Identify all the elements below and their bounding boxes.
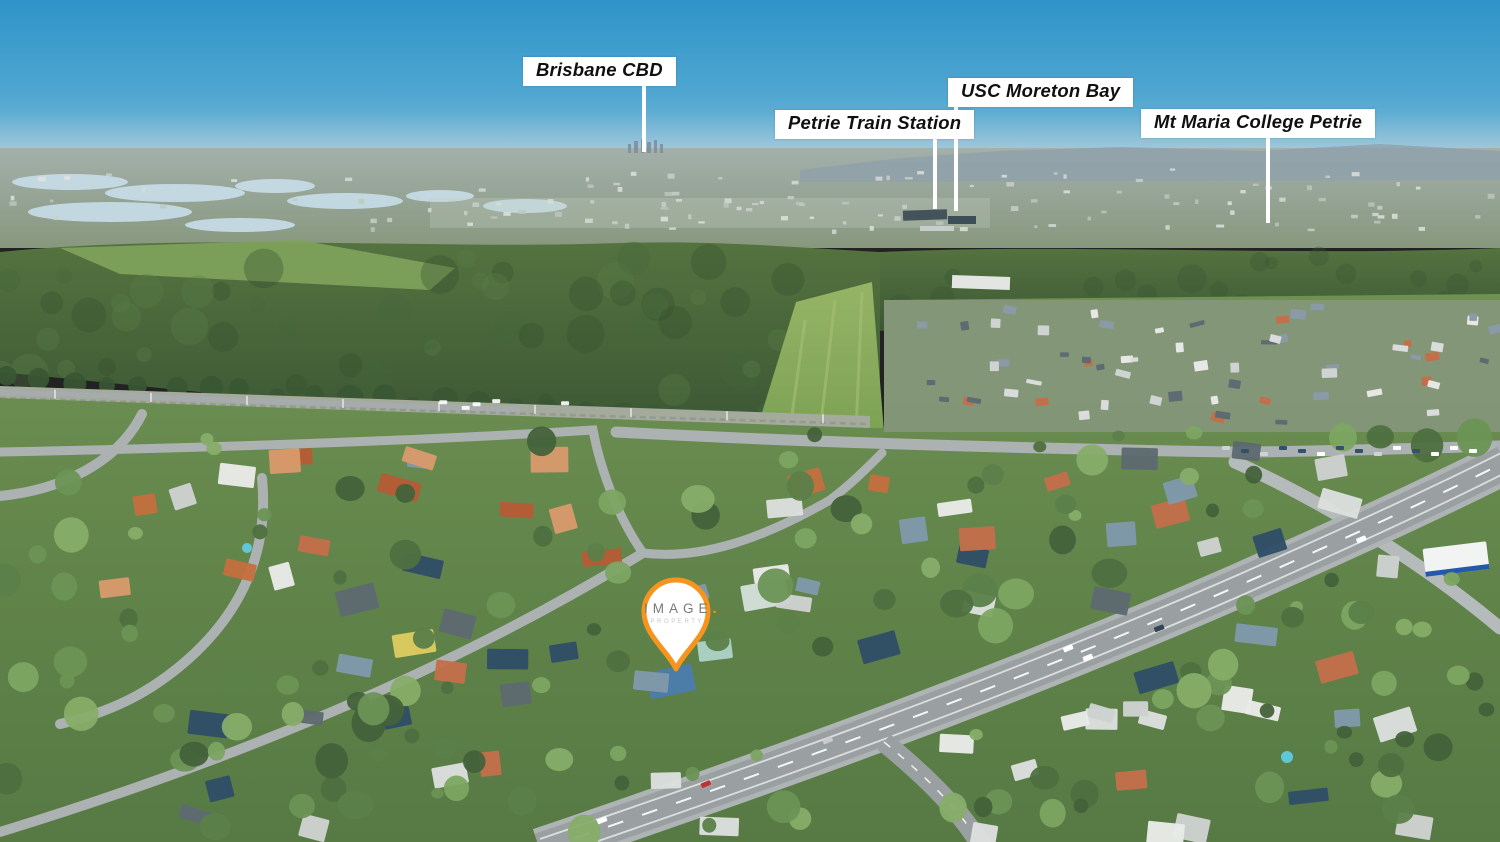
- leader-line-mt-maria: [1266, 135, 1270, 223]
- pin-shape: [639, 577, 713, 674]
- pin-subbrand-text: PROPERTY: [639, 619, 713, 625]
- landmark-label-usc-moreton-bay: USC Moreton Bay: [948, 78, 1133, 107]
- leader-line-brisbane-cbd: [642, 84, 646, 152]
- swimming-pool: [1281, 751, 1293, 763]
- leader-line-petrie-train-station: [933, 136, 937, 209]
- pin-brand-dot: .: [713, 600, 717, 617]
- mid-town-base: [884, 300, 1500, 432]
- location-pin: IMAGE. PROPERTY: [639, 577, 713, 674]
- pin-brand-text: IMAGE.: [639, 600, 713, 617]
- landmark-label-petrie-train-station: Petrie Train Station: [775, 110, 974, 139]
- landmark-label-mt-maria-college: Mt Maria College Petrie: [1141, 109, 1375, 138]
- landmark-label-brisbane-cbd: Brisbane CBD: [523, 57, 676, 86]
- aerial-photo-stage: Brisbane CBD Petrie Train Station USC Mo…: [0, 0, 1500, 842]
